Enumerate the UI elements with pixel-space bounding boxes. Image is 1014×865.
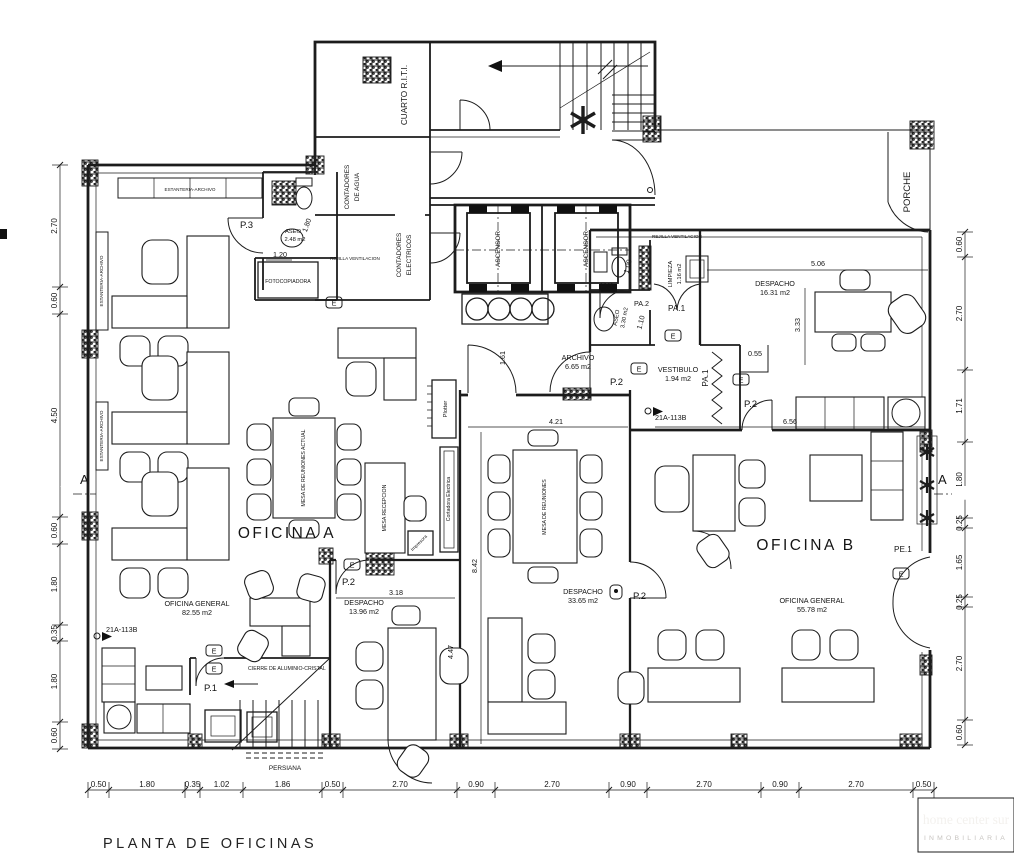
note-cierre: CIERRE DE ALUMINIO-CRISTAL	[248, 666, 326, 672]
desk-small	[338, 328, 416, 400]
dim-1-61: 1.61	[498, 351, 507, 365]
logo: home center sur INMOBILIARIA	[918, 798, 1014, 852]
note-rejilla: REJILLA VENTILACION	[652, 234, 702, 239]
label-cortadora: Cortadora Electrica	[446, 477, 452, 522]
dim-bottom-label: 1.80	[139, 780, 155, 789]
room-label-contadores-agua-1: CONTADORES	[344, 165, 351, 210]
desk-despacho-16	[815, 270, 930, 351]
desk-cluster-b-upper	[655, 455, 765, 571]
oficina-b-general-label: OFICINA GENERAL	[779, 596, 844, 605]
e-symbol: E	[332, 299, 337, 308]
room-label-contadores-elec-2: ELECTRICOS	[406, 235, 413, 276]
room-label-cuarto-riti: CUARTO R.I.T.I.	[400, 65, 409, 125]
label-estanteria-top: ESTANTERIA-ARCHIVO	[165, 187, 216, 192]
oficina-a-area: 82.55 m2	[182, 608, 212, 617]
room-label-limpieza: LIMPIEZA	[668, 261, 674, 288]
dim-left-label: 0.35	[50, 625, 59, 641]
room-label-despacho-central: DESPACHO	[563, 587, 603, 596]
despacho-central-area: 33.65 m2	[568, 596, 598, 605]
stairs-top	[430, 42, 655, 195]
dim-bottom-label: 0.35	[185, 780, 201, 789]
section-marker-left: A	[60, 472, 96, 500]
door-label-p3: P.3	[240, 220, 253, 231]
dim-left-label: 1.80	[50, 673, 59, 689]
floor-plan-svg: E E E E E E E E OFICINA A OFICINA B OFIC…	[0, 0, 1014, 865]
sofa-set-b	[796, 397, 925, 520]
door-label-p2: P.2	[633, 591, 646, 602]
dim-1-20: 1.20	[273, 250, 287, 259]
folding-door-icon	[712, 352, 722, 424]
dim-1-00: 1.00	[621, 258, 633, 274]
dim-left-label: 2.70	[50, 218, 59, 234]
oficina-a-general-label: OFICINA GENERAL	[164, 599, 229, 608]
door-label-p1: P.1	[204, 683, 217, 694]
dim-right-label: 0.25	[955, 594, 964, 610]
dim-right-label: 1.71	[955, 398, 964, 414]
dim-3-18: 3.18	[389, 588, 403, 597]
sink-icon-2	[594, 307, 614, 331]
arrow-icon	[224, 680, 234, 688]
despacho-right-area: 16.31 m2	[760, 288, 790, 297]
e-symbol: E	[212, 665, 217, 674]
dim-6-56: 6.56	[783, 417, 797, 426]
dim-bottom-label: 0.50	[325, 780, 341, 789]
dim-bottom-label: 2.70	[848, 780, 864, 789]
dim-right-label: 2.70	[955, 305, 964, 321]
label-mesa-recepcion: MESA RECEPCION	[382, 484, 388, 531]
desk-cluster-bottom-a	[235, 568, 327, 664]
logo-text: home center sur	[923, 812, 1010, 827]
sofa-corner-a	[102, 648, 190, 733]
desk-cluster	[112, 352, 229, 482]
dim-bottom-label: 0.90	[468, 780, 484, 789]
logo-subtext: INMOBILIARIA	[924, 835, 1008, 842]
dim-1-80: 1.80	[300, 217, 313, 233]
basin-icon	[594, 252, 607, 272]
dim-right-label: 2.70	[955, 655, 964, 671]
e-symbol: E	[350, 561, 355, 570]
e-symbol: E	[637, 365, 642, 374]
room-label-fotocopiadora: FOTOCOPIADORA	[265, 279, 311, 285]
e-symbol: E	[899, 570, 904, 579]
dim-0-55: 0.55	[748, 349, 762, 358]
room-label-porche: PORCHE	[902, 172, 913, 213]
lock-icon	[610, 585, 622, 599]
dim-bottom-label: 0.90	[772, 780, 788, 789]
desk-cluster-b1	[618, 630, 740, 704]
room-label-aseo-top: ASEO	[285, 229, 302, 235]
label-plotter: Plotter	[443, 401, 449, 418]
vestibulo-area: 1.94 m2	[665, 374, 691, 383]
dim-right-label: 0.25	[955, 515, 964, 531]
desk-cluster-b2	[782, 630, 874, 702]
e-symbol: E	[671, 332, 676, 341]
door-label-pe1: PE.1	[894, 545, 912, 554]
room-label-oficina-a: OFICINA A	[238, 525, 336, 542]
stair-direction-arrow	[488, 60, 502, 72]
drawing-title: PLANTA DE OFICINAS	[103, 836, 317, 852]
label-mesa-reuniones: MESA DE REUNIONES	[542, 479, 548, 535]
dim-bottom-label: 2.70	[544, 780, 560, 789]
desk-cluster-central-bottom	[488, 618, 566, 734]
door-label-pa1: PA.1	[701, 369, 710, 387]
dim-bottom-label: 0.50	[91, 780, 107, 789]
coat-rack	[462, 294, 554, 324]
note-ref-21a: 21A-113B	[655, 413, 687, 422]
room-label-despacho-right: DESPACHO	[755, 279, 795, 288]
dim-left-label: 0.60	[50, 727, 59, 743]
room-label-ascensor-2: ASCENSOR	[583, 231, 590, 267]
door-label-p2: P.2	[610, 377, 623, 388]
dim-left-label: 4.50	[50, 407, 59, 423]
e-symbol: E	[739, 376, 744, 385]
dim-1-10: 1.10	[634, 314, 646, 330]
dim-bottom-label: 1.02	[214, 780, 230, 789]
dim-bottom-label: 2.70	[696, 780, 712, 789]
door-label-p2: P.2	[744, 399, 757, 410]
cleaning-sink-icon	[686, 256, 708, 282]
dim-bottom-label: 0.50	[916, 780, 932, 789]
note-ref-21a: 21A-113B	[106, 625, 138, 634]
oficina-b-area: 55.78 m2	[797, 605, 827, 614]
dim-4-47: 4.47	[446, 645, 455, 659]
dim-left-label: 0.60	[50, 522, 59, 538]
e-symbol: E	[212, 647, 217, 656]
dim-right-label: 1.65	[955, 554, 964, 570]
room-label-archivo: ARCHIVO	[562, 353, 595, 362]
dim-5-06: 5.06	[811, 259, 825, 268]
room-label-oficina-b: OFICINA B	[756, 537, 855, 554]
dim-right-label: 0.60	[955, 236, 964, 252]
desk-cluster	[112, 236, 229, 366]
sheet-edge-mark	[0, 229, 7, 239]
dim-bottom-label: 1.86	[275, 780, 291, 789]
desk-cluster	[112, 468, 229, 598]
room-label-vestibulo: VESTIBULO	[658, 365, 699, 374]
room-label-contadores-elec-1: CONTADORES	[396, 233, 403, 278]
room-label-contadores-agua-2: DE AGUA	[354, 172, 361, 201]
aseo-mid-area: 3.30 m2	[620, 307, 630, 329]
door-label-p3: P.3	[600, 281, 613, 292]
dim-left-label: 1.80	[50, 576, 59, 592]
drawing-sheet: E E E E E E E E OFICINA A OFICINA B OFIC…	[0, 0, 1014, 865]
dim-left-label: 0.60	[50, 292, 59, 308]
limpieza-area: 1.16 m2	[677, 264, 683, 285]
dim-4-21: 4.21	[549, 417, 563, 426]
section-marker-label: A	[80, 472, 90, 487]
door-label-pa1: PA.1	[668, 304, 686, 313]
room-label-ascensor-1: ASCENSOR	[495, 231, 502, 267]
dim-right-label: 1.80	[955, 472, 964, 488]
label-estanteria-left2: ESTANTERIA-ARCHIVO	[99, 410, 104, 461]
note-rejilla: REJILLA VENTILACION	[330, 256, 380, 261]
despacho-left-area: 13.96 m2	[349, 607, 379, 616]
door-label-pa2: PA.2	[634, 299, 649, 308]
section-marker-label: A	[938, 472, 948, 487]
label-estanteria-left1: ESTANTERIA-ARCHIVO	[99, 255, 104, 306]
plant-icon	[571, 106, 595, 134]
label-impresora: Impresora	[410, 534, 428, 552]
dim-3-33: 3.33	[793, 318, 802, 332]
door-label-p2: P.2	[342, 577, 355, 588]
note-persiana: PERSIANA	[269, 765, 302, 772]
persiana-dashes	[246, 753, 323, 758]
archivo-area: 6.65 m2	[565, 362, 591, 371]
dim-8-42: 8.42	[470, 559, 479, 573]
dim-bottom-label: 0.90	[620, 780, 636, 789]
desk-despacho-13	[356, 606, 468, 783]
dim-right-label: 0.60	[955, 724, 964, 740]
aseo-top-area: 2.48 m2	[285, 237, 306, 243]
plotter-machine	[427, 380, 456, 438]
room-label-despacho-left: DESPACHO	[344, 598, 384, 607]
label-mesa-reuniones-actual: MESA DE REUNIONES ACTUAL	[301, 429, 307, 506]
dim-bottom-label: 2.70	[392, 780, 408, 789]
